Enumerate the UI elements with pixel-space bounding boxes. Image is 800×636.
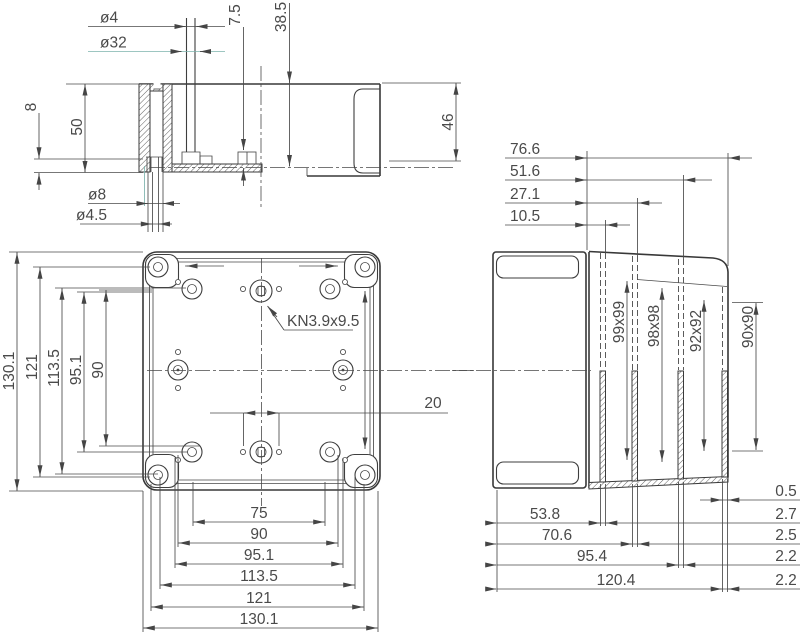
dim-left-95-1: 95.1 xyxy=(68,355,85,385)
cover-block xyxy=(493,252,586,488)
screw-callout: KN3.9x9.5 xyxy=(287,313,359,330)
side-section-view: 76.6 51.6 27.1 10.5 99x99 98x98 92x92 90… xyxy=(452,141,800,592)
dim-bottom-130-1: 130.1 xyxy=(240,611,279,628)
top-view: KN3.9x9.5 20 130.1 121 113.5 95.1 90 75 … xyxy=(1,252,476,632)
dim-90x90: 90x90 xyxy=(740,306,757,349)
dim-51-6: 51.6 xyxy=(510,163,540,180)
dim-98x98: 98x98 xyxy=(646,305,663,347)
dim-left-90: 90 xyxy=(90,361,107,379)
dim-120-4: 120.4 xyxy=(597,572,636,589)
side-geometry xyxy=(452,252,728,490)
dim-99x99: 99x99 xyxy=(611,301,628,343)
base-plate-section xyxy=(172,164,262,172)
dim-dia8: ø8 xyxy=(88,187,106,204)
top-view-geometry xyxy=(143,252,476,506)
dim-left-113-5: 113.5 xyxy=(46,349,63,387)
front-section-view: ø4 ø32 7.5 38.5 8 50 46 ø8 ø4.5 xyxy=(23,2,461,232)
dim-t-2-2b: 2.2 xyxy=(775,572,797,589)
dim-8: 8 xyxy=(23,103,40,112)
section-geometry xyxy=(139,18,456,232)
dim-t-2-2a: 2.2 xyxy=(775,548,797,565)
dim-dia4-5: ø4.5 xyxy=(76,207,107,224)
drawing-canvas: ø4 ø32 7.5 38.5 8 50 46 ø8 ø4.5 xyxy=(0,0,800,636)
top-view-dimensions xyxy=(9,252,448,632)
dim-dia4: ø4 xyxy=(100,10,118,27)
dim-76-6: 76.6 xyxy=(510,141,540,158)
dim-t-0-5: 0.5 xyxy=(775,483,797,500)
dim-53-8: 53.8 xyxy=(530,506,560,523)
side-labels: 76.6 51.6 27.1 10.5 99x99 98x98 92x92 90… xyxy=(510,141,797,589)
dim-10-5: 10.5 xyxy=(510,208,540,225)
technical-drawing: ø4 ø32 7.5 38.5 8 50 46 ø8 ø4.5 xyxy=(0,0,800,636)
dim-dia32: ø32 xyxy=(100,35,127,52)
dim-46: 46 xyxy=(440,113,457,130)
dim-bottom-121: 121 xyxy=(246,590,272,607)
dim-bottom-95-1: 95.1 xyxy=(244,547,274,564)
dim-left-130-1: 130.1 xyxy=(1,352,18,391)
dim-t-2-7: 2.7 xyxy=(775,506,797,523)
dim-95-4: 95.4 xyxy=(577,548,608,565)
dim-bottom-113-5: 113.5 xyxy=(240,568,278,585)
dim-7-5: 7.5 xyxy=(227,4,244,26)
mounting-bosses xyxy=(168,279,353,463)
dim-38-5: 38.5 xyxy=(273,2,290,32)
dim-20: 20 xyxy=(424,395,442,412)
dim-t-2-5: 2.5 xyxy=(775,527,797,544)
dim-27-1: 27.1 xyxy=(510,186,540,203)
dim-92x92: 92x92 xyxy=(688,310,705,352)
section-labels: ø4 ø32 7.5 38.5 8 50 46 ø8 ø4.5 xyxy=(23,2,457,224)
bottom-wall-section xyxy=(589,477,728,490)
dim-bottom-90: 90 xyxy=(250,526,268,543)
dim-bottom-75: 75 xyxy=(250,505,267,522)
dim-left-121: 121 xyxy=(24,354,41,380)
dim-50: 50 xyxy=(69,118,86,136)
cover-clip-profile xyxy=(354,89,380,173)
dim-70-6: 70.6 xyxy=(542,527,572,544)
body-outline xyxy=(589,252,728,478)
